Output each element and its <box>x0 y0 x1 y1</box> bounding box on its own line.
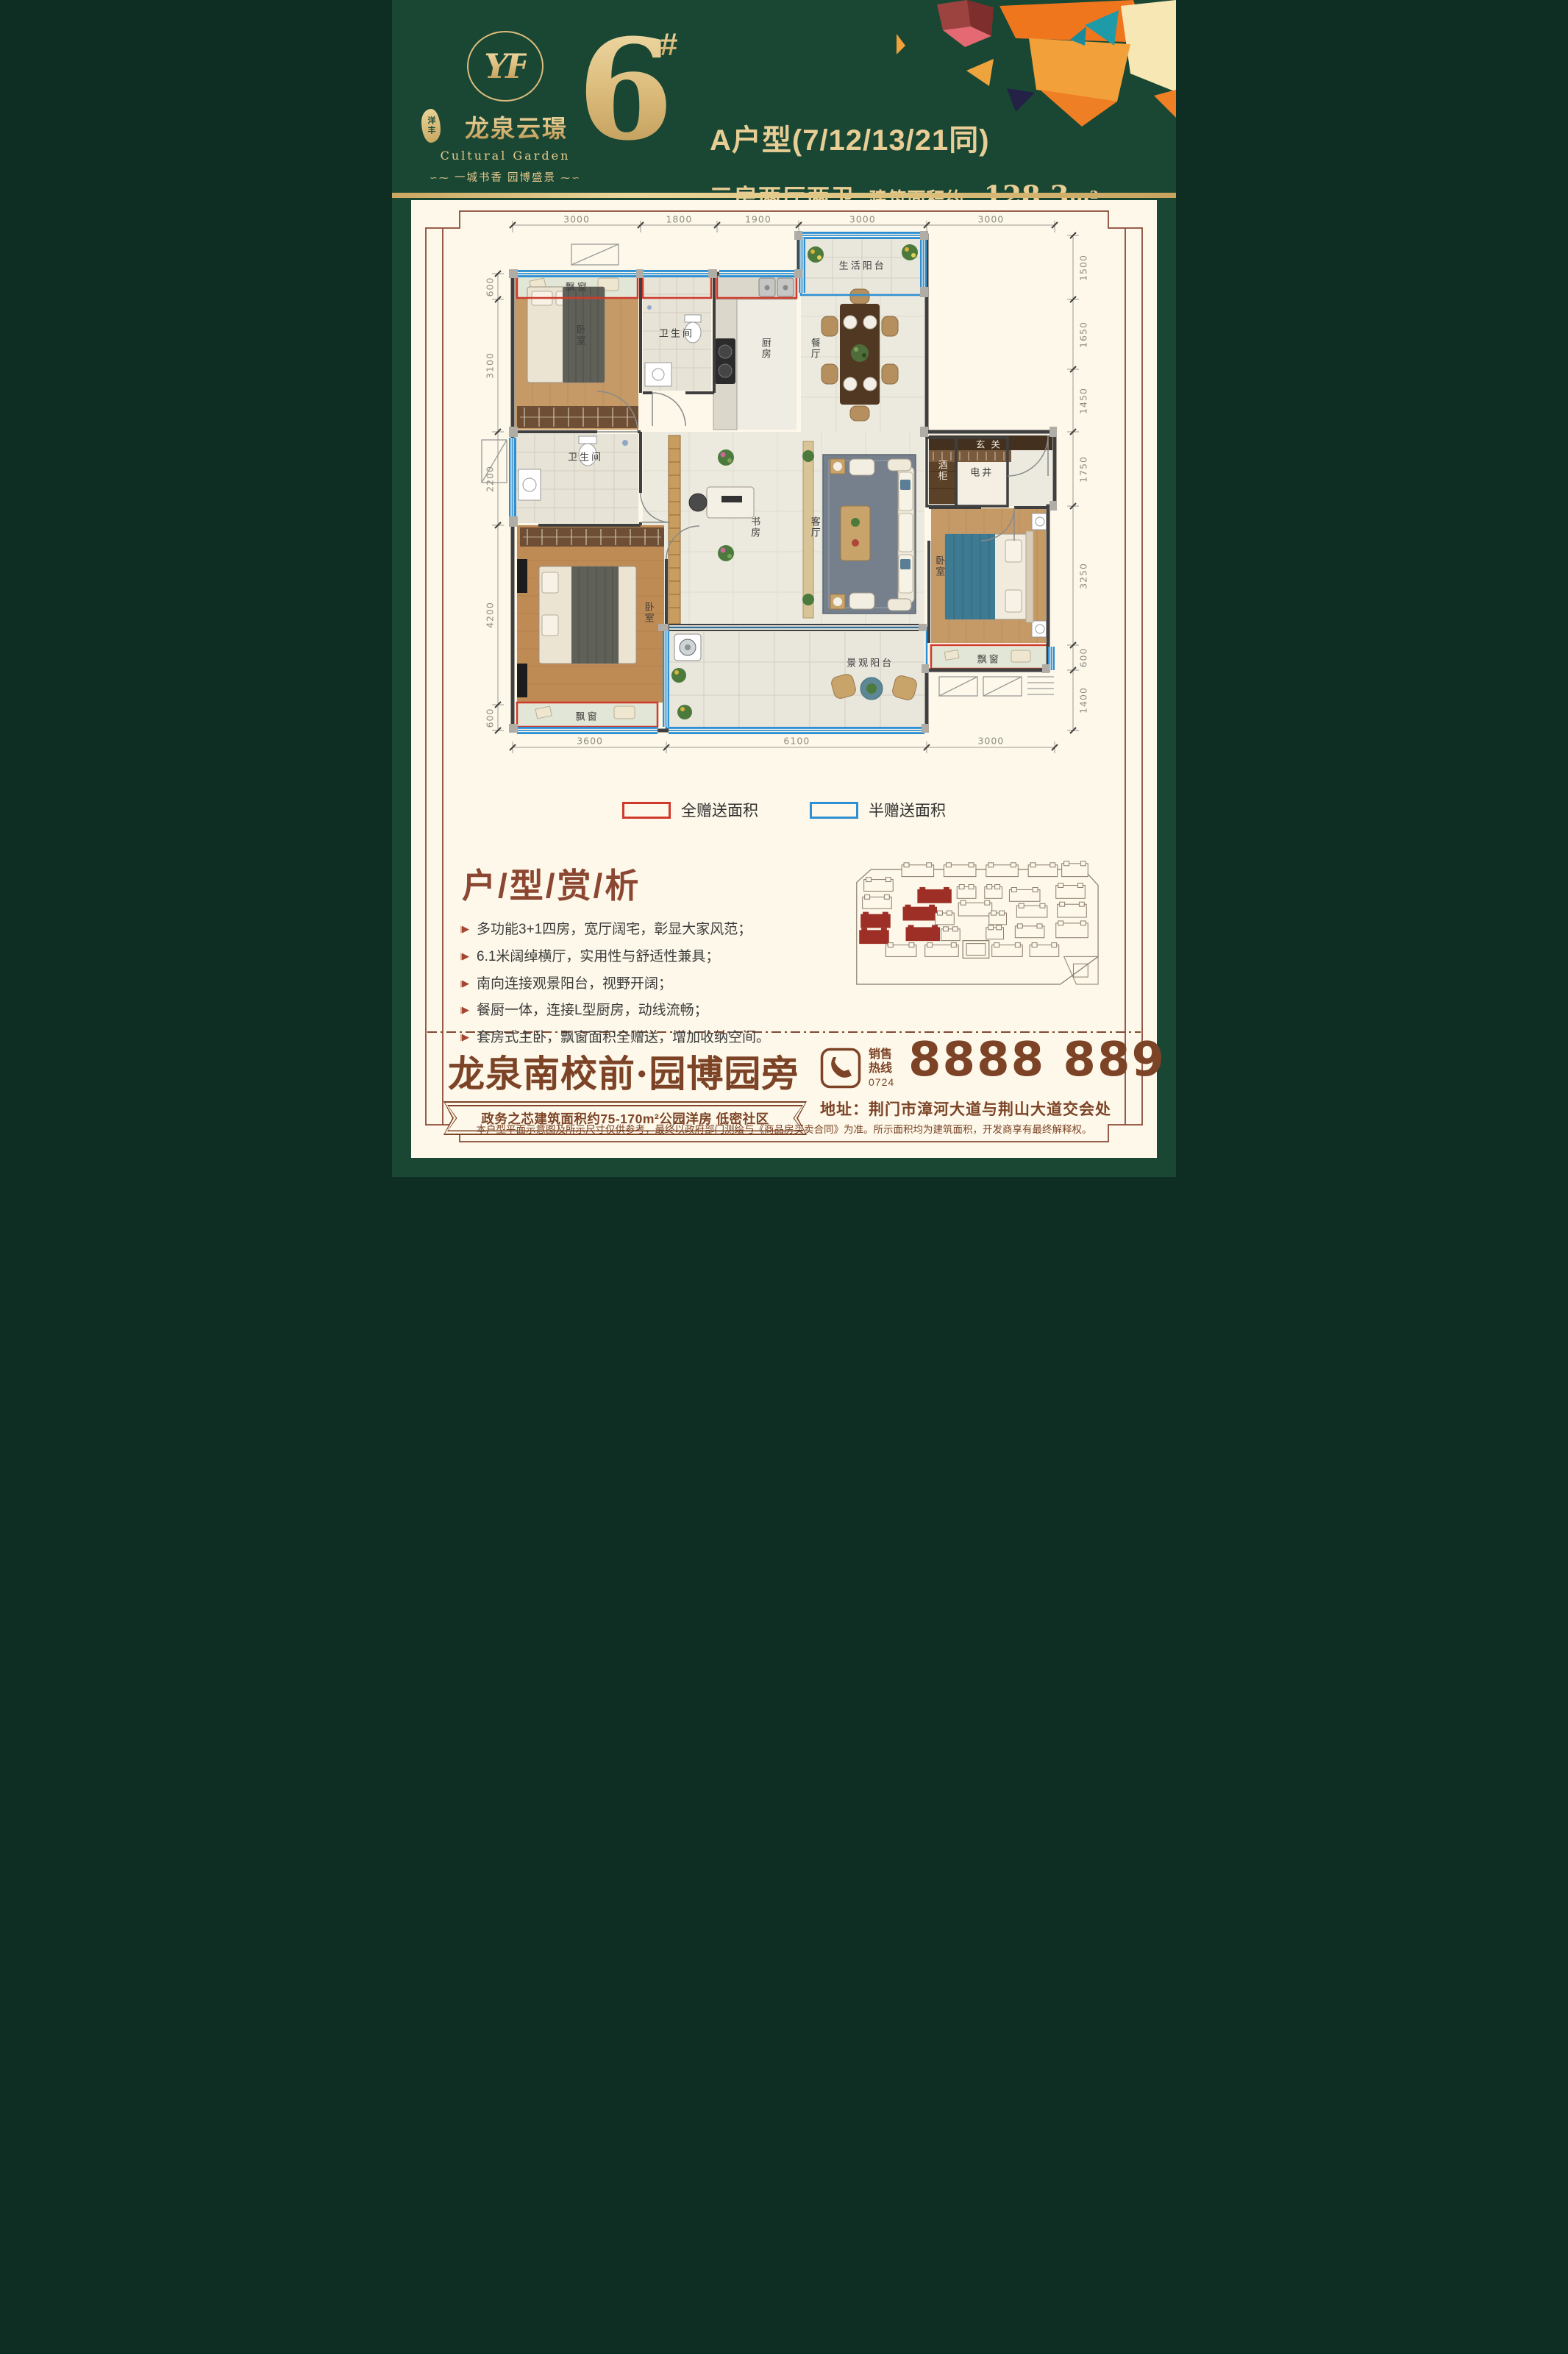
logo-seal: 洋丰 <box>421 109 441 143</box>
bullet-arrow-icon: ▶ <box>462 978 469 989</box>
logo-monogram-icon: YF <box>467 31 544 102</box>
flyer-page: YF 洋丰 龙泉云璟 Cultural Garden ∽⁓ 一城书香 园博盛景 … <box>392 0 1176 1177</box>
dim-right-5: 3250 <box>1077 563 1088 589</box>
room-label-bath2: 卫生间 <box>568 449 603 463</box>
header: YF 洋丰 龙泉云璟 Cultural Garden ∽⁓ 一城书香 园博盛景 … <box>392 0 1176 193</box>
bullet-arrow-icon: ▶ <box>462 923 469 935</box>
brand-subtitle: Cultural Garden <box>420 149 591 163</box>
dim-left-5: 600 <box>485 708 496 728</box>
analysis-title: 户/型/赏/析 <box>462 859 641 908</box>
floor-plan: 飘窗 卧室 卫生间 厨房 餐厅 生活阳台 酒柜 电井 卫生间 卧室 书房 客厅 … <box>468 213 1101 772</box>
legend: 全赠送面积 半赠送面积 <box>392 799 1176 821</box>
hash-mark: # <box>660 26 677 63</box>
room-label-study: 书房 <box>748 516 762 538</box>
room-label-bay1: 飘窗 <box>566 279 589 293</box>
legend-full-label: 全赠送面积 <box>681 799 758 821</box>
room-label-foyer: 玄关 <box>976 437 1006 451</box>
brand-logo: YF 洋丰 龙泉云璟 Cultural Garden ∽⁓ 一城书香 园博盛景 … <box>420 31 591 185</box>
address-line: 地址：荆门市漳河大道与荆山大道交会处 <box>820 1098 1111 1120</box>
location-headline: 龙泉南校前·园博园旁 <box>448 1045 799 1098</box>
floor-plan-drawing <box>468 213 1101 772</box>
room-label-master-bedroom: 卧室 <box>642 602 656 624</box>
analysis-bullets: ▶多功能3+1四房，宽厅阔宅，彰显大家风范； ▶6.1米阔绰横厅，实用性与舒适性… <box>462 921 863 1056</box>
bullet-arrow-icon: ▶ <box>462 1031 469 1043</box>
dim-right-3: 1450 <box>1077 388 1088 414</box>
bullet-item: ▶多功能3+1四房，宽厅阔宅，彰显大家风范； <box>462 921 863 939</box>
unit-title: A户型(7/12/13/21同) <box>710 116 990 159</box>
room-label-living: 客厅 <box>808 516 822 538</box>
dim-right-2: 1650 <box>1077 321 1088 348</box>
dim-left-2: 3100 <box>485 352 496 379</box>
room-label-bedroom3: 卧室 <box>933 555 947 577</box>
bullet-arrow-icon: ▶ <box>462 1004 469 1016</box>
dim-bottom-2: 6100 <box>783 735 810 746</box>
site-plan <box>842 847 1104 989</box>
dim-right-1: 1500 <box>1077 255 1088 281</box>
room-label-shaft: 电井 <box>970 465 994 479</box>
room-label-kitchen: 厨房 <box>759 338 773 360</box>
building-number: 6 # <box>577 13 673 182</box>
room-label-bay2: 飘窗 <box>576 709 599 723</box>
dim-top-1: 3000 <box>563 214 590 225</box>
dim-top-3: 1900 <box>745 214 771 225</box>
disclaimer-text: 本户型平面示意图及所示尺寸仅供参考，最终以政府部门测绘与《商品房买卖合同》为准。… <box>451 1121 1117 1136</box>
phone-icon <box>820 1048 861 1089</box>
room-label-view-balcony: 景观阳台 <box>847 655 894 669</box>
room-label-bedroom1: 卧室 <box>574 324 588 346</box>
legend-half-gift: 半赠送面积 <box>810 799 946 821</box>
dim-right-6: 600 <box>1077 648 1088 668</box>
bullet-item: ▶餐厨一体，连接L型厨房，动线流畅； <box>462 1002 863 1020</box>
brand-tagline: ∽⁓ 一城书香 园博盛景 ⁓∽ <box>420 169 591 185</box>
legend-half-label: 半赠送面积 <box>869 799 946 821</box>
bullet-arrow-icon: ▶ <box>462 950 469 962</box>
room-label-service-balcony: 生活阳台 <box>839 257 886 271</box>
dim-right-4: 1750 <box>1077 456 1088 483</box>
hotline-label: 销售 热线 0724 <box>869 1048 894 1089</box>
legend-full-gift: 全赠送面积 <box>622 799 758 821</box>
dim-bottom-3: 3000 <box>977 735 1004 746</box>
bullet-item: ▶南向连接观景阳台，视野开阔； <box>462 975 863 993</box>
dim-right-7: 1400 <box>1077 687 1088 714</box>
dim-left-4: 4200 <box>485 602 496 628</box>
dim-top-5: 3000 <box>977 214 1004 225</box>
legend-red-swatch <box>622 802 671 819</box>
dim-bottom-1: 3600 <box>577 735 603 746</box>
brand-name: 龙泉云璟 <box>442 109 591 144</box>
gold-divider <box>392 193 1176 198</box>
hotline-area-code: 0724 <box>869 1075 894 1089</box>
dim-top-2: 1800 <box>666 214 692 225</box>
dim-top-4: 3000 <box>849 214 876 225</box>
dim-left-3: 2200 <box>485 466 496 492</box>
dim-left-1: 600 <box>485 277 496 297</box>
hotline-number: 8888 889 <box>908 1033 1166 1087</box>
room-label-wine-cabinet: 酒柜 <box>936 460 949 482</box>
room-label-bay3: 飘窗 <box>977 651 1001 665</box>
room-label-dining: 餐厅 <box>808 338 822 360</box>
room-label-bath1: 卫生间 <box>659 325 694 339</box>
bullet-item: ▶6.1米阔绰横厅，实用性与舒适性兼具； <box>462 948 863 966</box>
legend-blue-swatch <box>810 802 858 819</box>
